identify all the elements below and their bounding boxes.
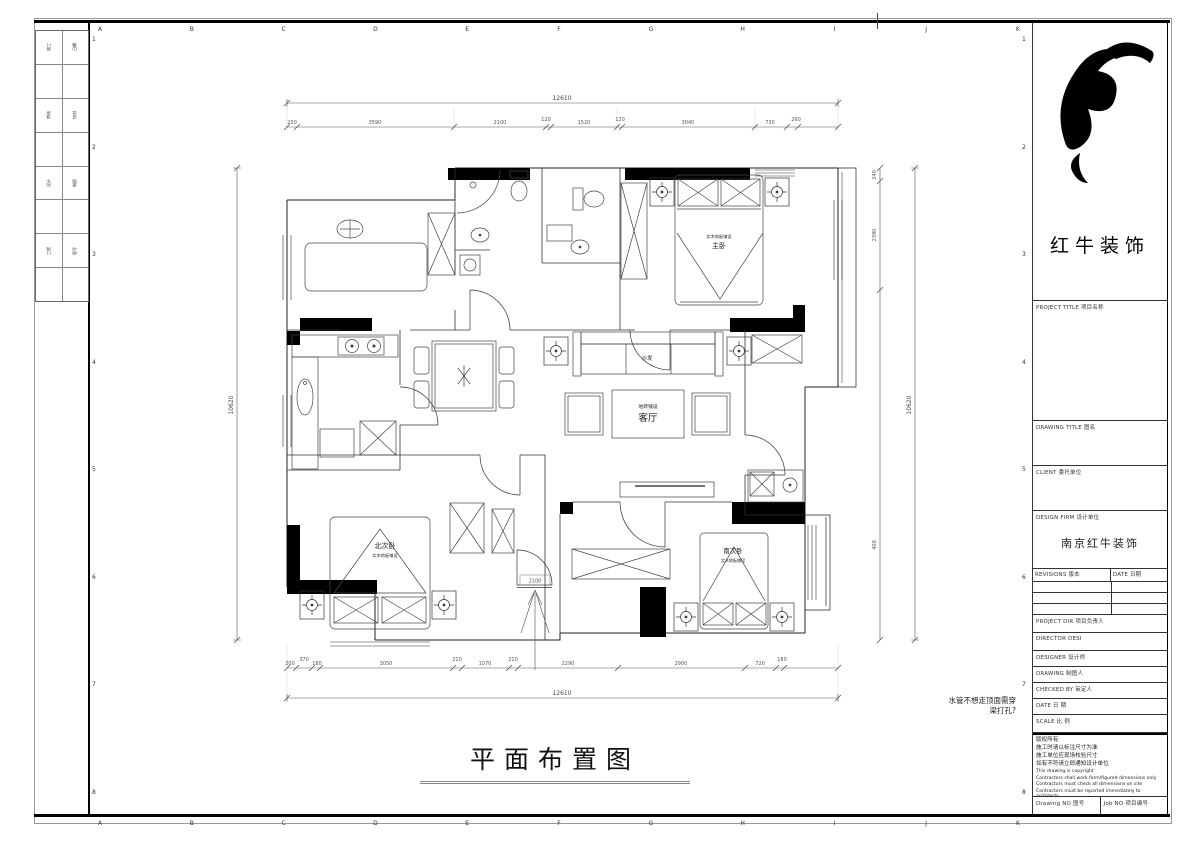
frame-top-line — [34, 20, 1170, 23]
label-south-bedroom: 南次卧 — [723, 546, 743, 555]
design-firm-value: 南京红牛装饰 — [1036, 535, 1164, 551]
director-cell: DIRECTOR DESI — [1033, 633, 1167, 651]
dim-top-seg: 230 — [287, 120, 297, 126]
label-living-finish: 地砖铺设 — [638, 403, 657, 410]
row-numbers-left: 12345678 — [92, 36, 100, 796]
dimensions: 12610 230 3590 2100 120 1520 120 3040 73… — [228, 95, 919, 702]
design-firm-cell: DESIGN FIRM 设计单位 南京红牛装饰 — [1033, 511, 1167, 569]
dim-top-seg: 2100 — [494, 120, 507, 126]
project-title-cell: PROJECT TITLE 项目名称 — [1033, 301, 1167, 421]
project-dir-cell: PROJECT DIR 项目负责人 — [1033, 615, 1167, 633]
company-logo — [1036, 25, 1164, 225]
room-labels: 沙发 地砖铺设 客厅 实木地板铺设 主卧 北次卧 实木地板铺设 南次卧 实木地板… — [372, 233, 745, 585]
designer-cell: DESIGNER 设计师 — [1033, 651, 1167, 667]
revisions-cell: REVISIONS 版本DATE 日期 — [1033, 569, 1167, 615]
dim-right-seg: 2390 — [872, 229, 878, 242]
dim-bottom-total: 12610 — [552, 690, 571, 697]
dim-bottom-seg: 1070 — [479, 661, 492, 667]
label-sofa: 沙发 — [641, 354, 653, 362]
dim-top-seg: 120 — [615, 117, 625, 123]
dim-bottom-seg: 720 — [755, 661, 765, 667]
date-cell: DATE 日 期 — [1033, 699, 1167, 715]
dim-bottom-seg: 210 — [508, 657, 518, 663]
furniture — [292, 170, 803, 670]
label-north-finish: 实木地板铺设 — [372, 552, 398, 559]
dim-left-total: 10620 — [228, 395, 235, 414]
frame-bottom-line — [34, 814, 1170, 817]
dim-top-seg: 730 — [765, 120, 775, 126]
floor-plan-drawing: 12610 230 3590 2100 120 1520 120 3040 73… — [180, 85, 935, 725]
dim-bottom-seg: 2290 — [562, 661, 575, 667]
extension-lines — [287, 107, 838, 701]
dim-bottom-seg: 200 — [285, 661, 295, 667]
dim-bottom-seg: 370 — [299, 657, 309, 663]
dim-top-seg: 120 — [541, 117, 551, 123]
label-master: 主卧 — [712, 241, 726, 250]
title-block: 红牛装饰 PROJECT TITLE 项目名称 DRAWING TITLE 图名… — [1032, 23, 1167, 814]
scale-cell: SCALE 比 例 — [1033, 715, 1167, 733]
dim-right-seg: 240 — [872, 170, 878, 180]
signoff-strip: 竣工日期 审核校对 设计制图 工程图号 — [35, 30, 89, 302]
company-name: 红牛装饰 — [1036, 231, 1164, 258]
dim-bottom-seg: 210 — [452, 657, 462, 663]
numbers-cell: Drawing NO 图号 Job NO 项目编号 — [1033, 797, 1167, 814]
dim-right-total: 10620 — [906, 395, 913, 414]
dim-bottom-seg: 180 — [777, 657, 787, 663]
job-no-cell: Job NO 项目编号 — [1101, 797, 1168, 814]
drawing-cell: DRAWING 制图人 — [1033, 667, 1167, 683]
client-cell: CLIENT 委托单位 — [1033, 466, 1167, 511]
sheet-title: 平面布置图 — [420, 740, 690, 782]
copyright-cell: 版权所有 施工时请以标注尺寸为准 施工单位应现场校验尺寸 如有不符请立即通知设计… — [1033, 733, 1167, 797]
label-north-bedroom: 北次卧 — [375, 541, 396, 550]
drawing-title-cell: DRAWING TITLE 图名 — [1033, 421, 1167, 466]
company-panel: 红牛装饰 — [1033, 23, 1167, 301]
grid-letters-bottom: ABCDEFGHIJK — [95, 820, 1023, 830]
label-entry-width: 2100 — [529, 579, 542, 585]
floor-plan-sheet: { "colors": {"ink": "#1a1a1a", "paper": … — [0, 0, 1200, 844]
label-master-finish: 实木地板铺设 — [706, 233, 732, 240]
dim-top-seg: 3590 — [369, 120, 382, 126]
dim-bottom-seg: 180 — [312, 661, 322, 667]
drawing-no-cell: Drawing NO 图号 — [1033, 797, 1101, 814]
dim-right-seg: 400 — [872, 540, 878, 550]
checked-by-cell: CHECKED BY 审定人 — [1033, 683, 1167, 699]
label-living: 客厅 — [638, 412, 658, 424]
dim-bottom-seg: 2900 — [675, 661, 688, 667]
dim-bottom-seg: 3050 — [380, 661, 393, 667]
grid-letters-top: ABCDEFGHIJK — [95, 26, 1023, 36]
label-south-finish: 实木地板铺设 — [721, 557, 745, 563]
row-numbers-right: 12345678 — [1022, 36, 1030, 796]
dim-top-seg: 1520 — [578, 120, 591, 126]
dim-top-seg: 3040 — [682, 120, 695, 126]
dim-top-total: 12610 — [552, 95, 571, 102]
walls — [283, 168, 856, 646]
plan-note: 水管不想走顶面需穿 梁打孔? — [898, 696, 1016, 716]
dim-top-seg: 260 — [791, 117, 801, 123]
